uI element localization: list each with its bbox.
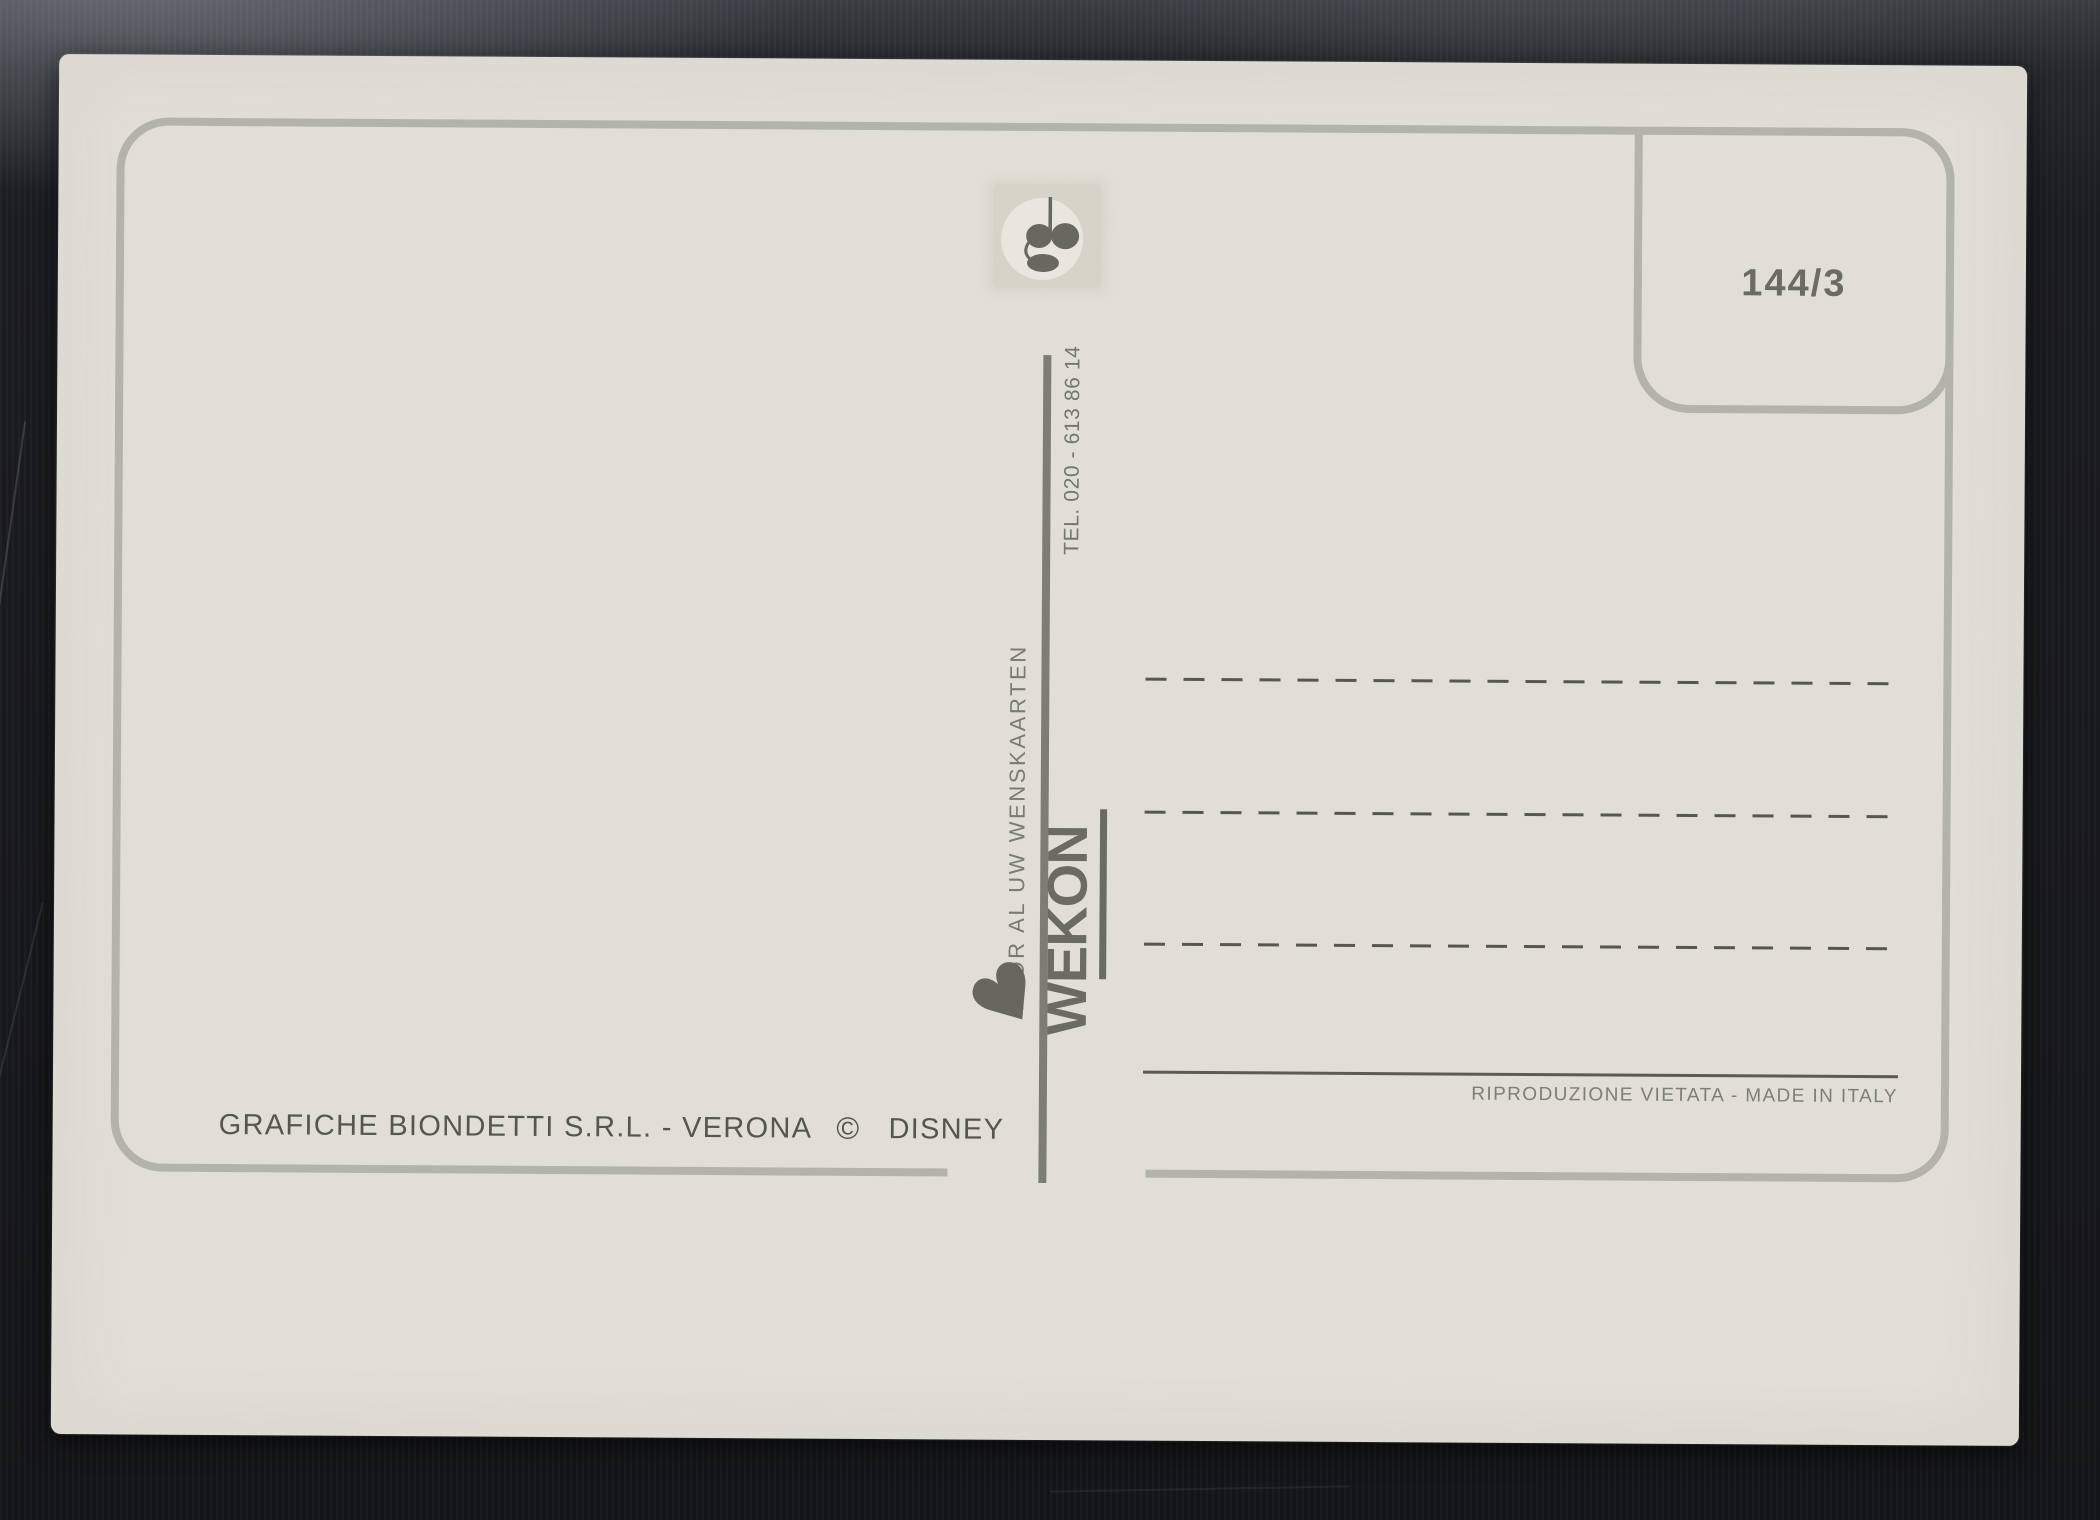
phone-number-vertical: TEL. 020 - 613 86 14 [1060, 345, 1085, 554]
gb-monogram-icon [993, 184, 1102, 289]
rights-notice: RIPRODUZIONE VIETATA - MADE IN ITALY [1143, 1082, 1898, 1109]
copyright-icon: © [836, 1111, 860, 1147]
photo-background: 144/3 TEL. 020 - 613 86 14 VOOR AL UW WE… [0, 0, 2100, 1520]
postcard-back: 144/3 TEL. 020 - 613 86 14 VOOR AL UW WE… [51, 54, 2027, 1446]
printer-credit: GRAFICHE BIONDETTI S.R.L. - VERONA © DIS… [219, 1108, 1005, 1147]
copyright-holder: DISNEY [888, 1113, 1004, 1147]
wekon-logo-underline [1099, 810, 1107, 980]
stamp-box: 144/3 [1633, 127, 1955, 415]
publisher-watermark [993, 184, 1102, 289]
series-number: 144/3 [1741, 236, 1847, 306]
printer-name: GRAFICHE BIONDETTI S.R.L. - VERONA [219, 1108, 813, 1145]
